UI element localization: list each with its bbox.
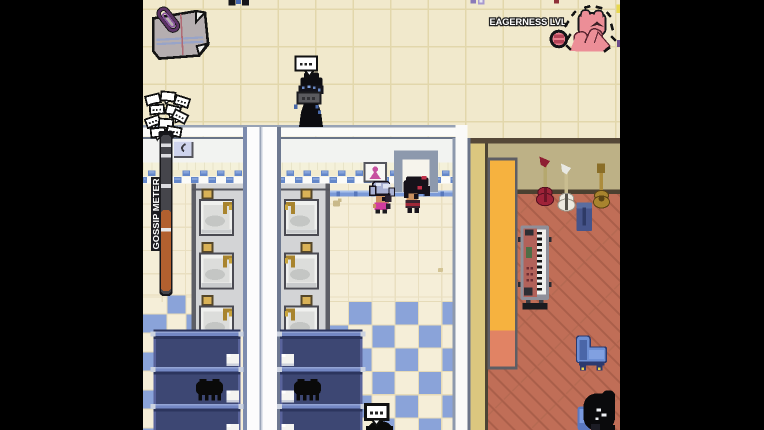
svg-text:GOSSIP METER: GOSSIP METER xyxy=(151,179,161,250)
svg-text:EAGERNESS LVL: EAGERNESS LVL xyxy=(490,17,567,27)
